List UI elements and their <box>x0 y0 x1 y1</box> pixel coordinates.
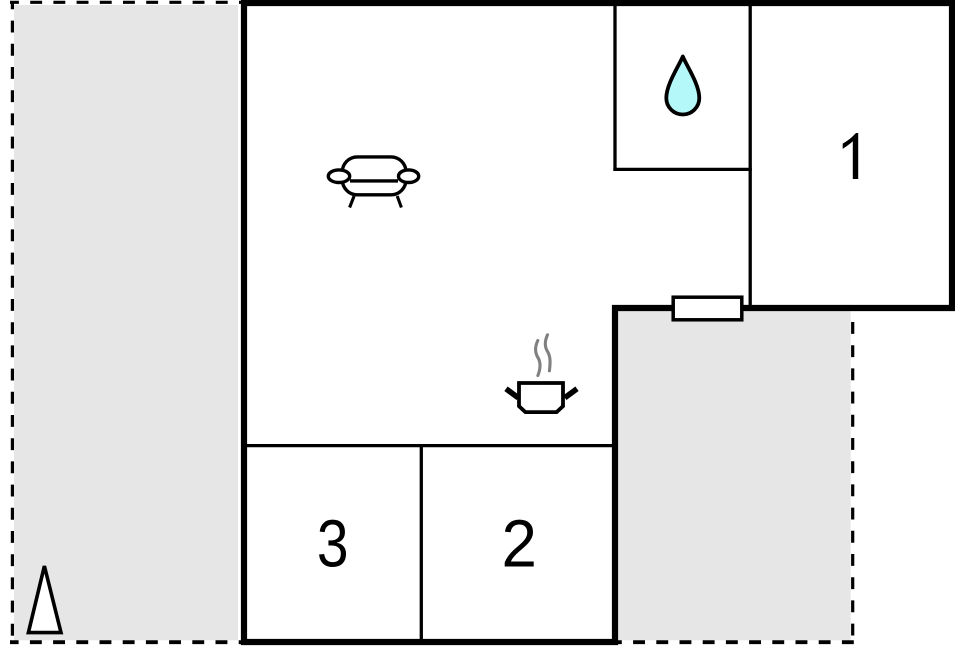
svg-text:3: 3 <box>317 507 349 581</box>
svg-text:2: 2 <box>501 506 536 581</box>
